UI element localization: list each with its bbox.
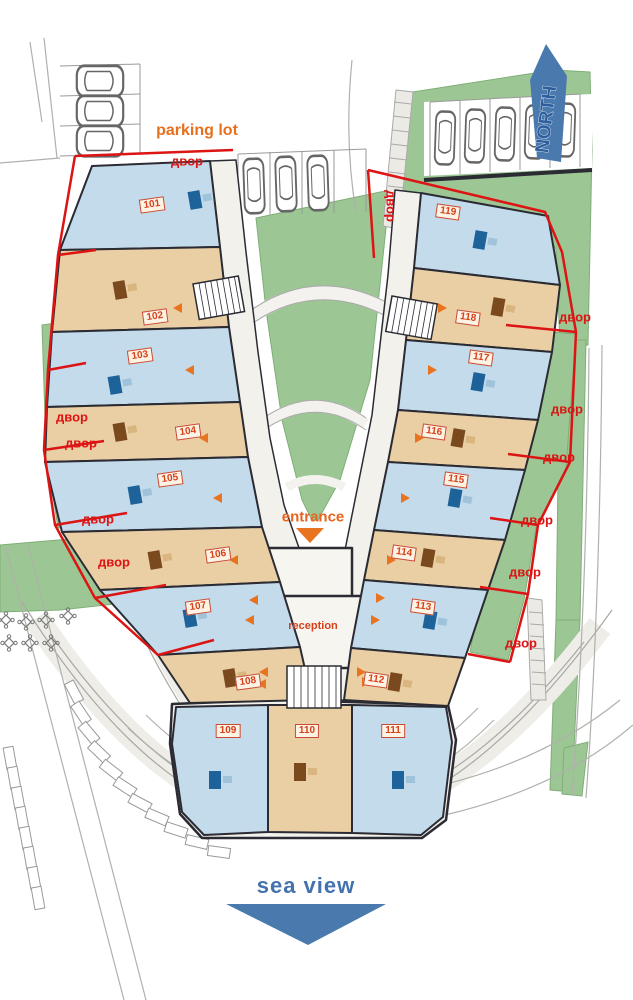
parking-top-right [424, 94, 592, 180]
yard-label: двор [56, 410, 88, 425]
parking-left-edge-spots [3, 746, 45, 909]
reception-label: reception [288, 620, 338, 632]
entrance-arrow-icon [296, 528, 324, 543]
yard-label: двор [509, 565, 541, 580]
yard-label: двор [384, 190, 399, 222]
car-icon [434, 111, 455, 164]
parking-left-column [60, 64, 140, 156]
unit-112 [344, 648, 465, 706]
unit-103 [47, 327, 240, 407]
sea-view-arrow-icon [226, 904, 386, 945]
yard-label: двор [65, 436, 97, 451]
unit-111-label: 111 [381, 724, 405, 738]
car-icon [464, 109, 485, 162]
yard-label: двор [559, 310, 591, 325]
car-icon [243, 158, 265, 213]
car-icon [77, 126, 123, 156]
yard-label: двор [521, 513, 553, 528]
car-icon [77, 66, 123, 96]
car-icon [275, 156, 297, 211]
entrance-label: entrance [282, 509, 345, 526]
yard-label: двор [543, 450, 575, 465]
site-plan: NORTH parking lot entrance reception sea… [0, 0, 633, 1000]
unit-110-label: 110 [295, 724, 319, 738]
yard-label: двор [82, 512, 114, 527]
yard-label: двор [171, 154, 203, 169]
yard-label: двор [551, 402, 583, 417]
parking-lot-label: parking lot [156, 122, 238, 140]
car-icon [77, 96, 123, 126]
car-icon [494, 107, 515, 160]
car-icon [307, 155, 329, 210]
unit-109-label: 109 [216, 724, 241, 738]
yard-label: двор [505, 636, 537, 651]
site-plan-svg: NORTH [0, 0, 633, 1000]
north-arrow: NORTH [530, 44, 567, 162]
yard-label: двор [98, 555, 130, 570]
sea-view-label: sea view [257, 873, 356, 899]
